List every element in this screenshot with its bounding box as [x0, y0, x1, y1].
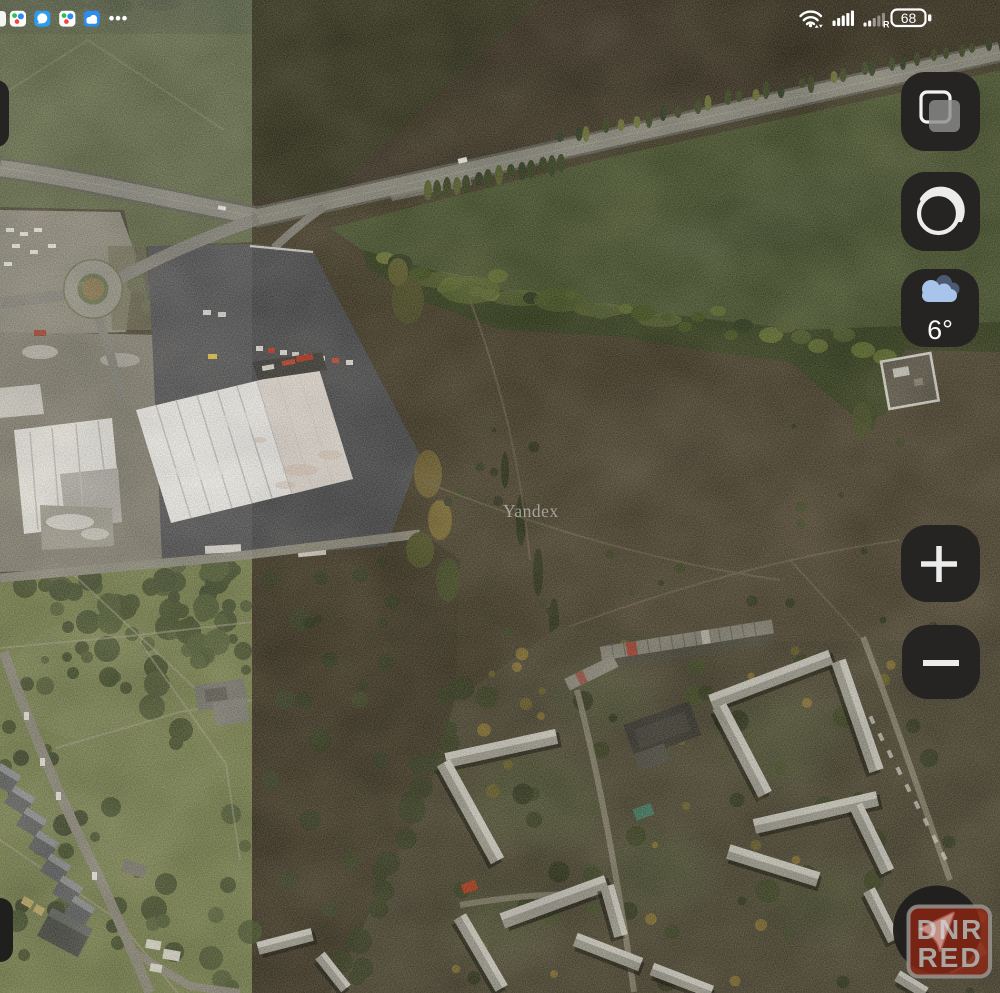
svg-text:Yandex: Yandex — [503, 501, 559, 521]
svg-text:6°: 6° — [927, 315, 953, 345]
svg-text:R: R — [883, 20, 890, 30]
svg-text:RED: RED — [917, 942, 982, 973]
svg-text:68: 68 — [901, 10, 917, 26]
